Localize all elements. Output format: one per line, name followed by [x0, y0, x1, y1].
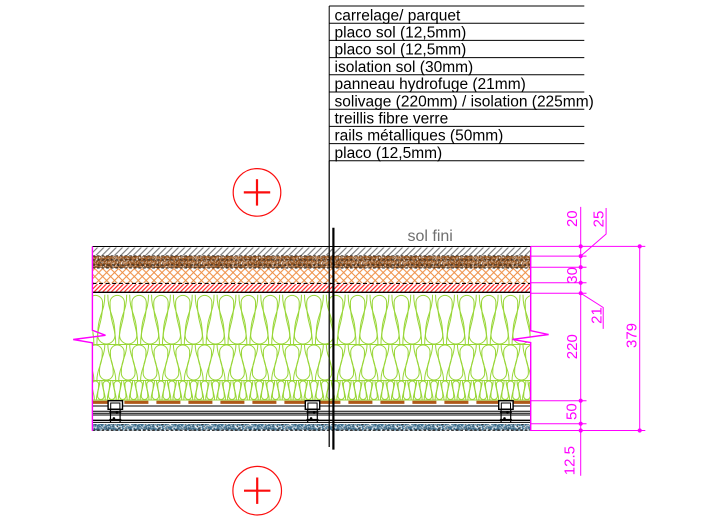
- svg-text:isolation sol (30mm): isolation sol (30mm): [335, 59, 474, 76]
- svg-text:12.5: 12.5: [562, 446, 579, 475]
- svg-text:220: 220: [564, 334, 581, 359]
- svg-text:placo (12,5mm): placo (12,5mm): [335, 145, 443, 162]
- svg-text:rails métalliques (50mm): rails métalliques (50mm): [335, 128, 504, 145]
- svg-text:20: 20: [564, 210, 581, 227]
- svg-text:30: 30: [564, 267, 581, 284]
- svg-text:solivage (220mm) / isolation (: solivage (220mm) / isolation (225mm): [335, 93, 594, 110]
- svg-text:379: 379: [624, 323, 641, 348]
- svg-text:sol fini: sol fini: [408, 228, 453, 245]
- svg-text:carrelage/ parquet: carrelage/ parquet: [335, 7, 461, 24]
- svg-text:panneau hydrofuge (21mm): panneau hydrofuge (21mm): [335, 76, 526, 93]
- svg-text:placo sol (12,5mm): placo sol (12,5mm): [335, 42, 467, 59]
- svg-text:treillis fibre verre: treillis fibre verre: [335, 111, 449, 128]
- svg-text:21: 21: [589, 307, 606, 324]
- svg-text:placo sol (12,5mm): placo sol (12,5mm): [335, 25, 467, 42]
- svg-text:50: 50: [564, 403, 581, 420]
- svg-text:25: 25: [590, 211, 607, 228]
